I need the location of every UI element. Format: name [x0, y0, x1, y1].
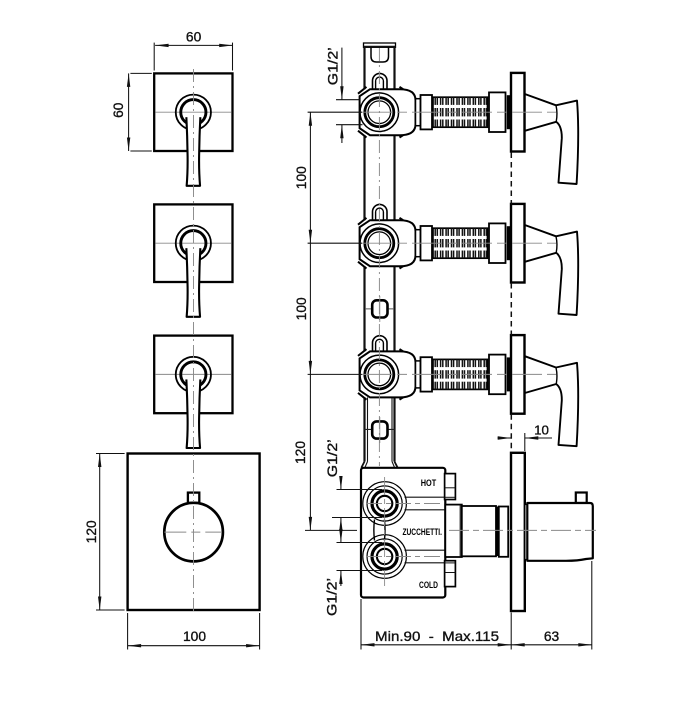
svg-text:100: 100 — [183, 629, 206, 644]
svg-text:G1/2’: G1/2’ — [324, 578, 339, 616]
svg-text:G1/2’: G1/2’ — [326, 47, 341, 85]
svg-text:63: 63 — [544, 629, 560, 644]
svg-text:120: 120 — [84, 520, 99, 543]
svg-text:100: 100 — [294, 297, 309, 320]
svg-text:ZUCCHETTI.: ZUCCHETTI. — [402, 527, 442, 538]
svg-text:120: 120 — [293, 441, 308, 464]
svg-text:10: 10 — [534, 423, 549, 438]
svg-text:G1/2’: G1/2’ — [325, 439, 340, 477]
svg-text:60: 60 — [186, 30, 202, 45]
svg-text:COLD: COLD — [419, 580, 438, 590]
svg-text:Min.90 - Max.115: Min.90 - Max.115 — [375, 629, 499, 644]
svg-text:60: 60 — [111, 102, 126, 118]
svg-text:HOT: HOT — [421, 478, 437, 488]
svg-text:100: 100 — [294, 166, 309, 189]
